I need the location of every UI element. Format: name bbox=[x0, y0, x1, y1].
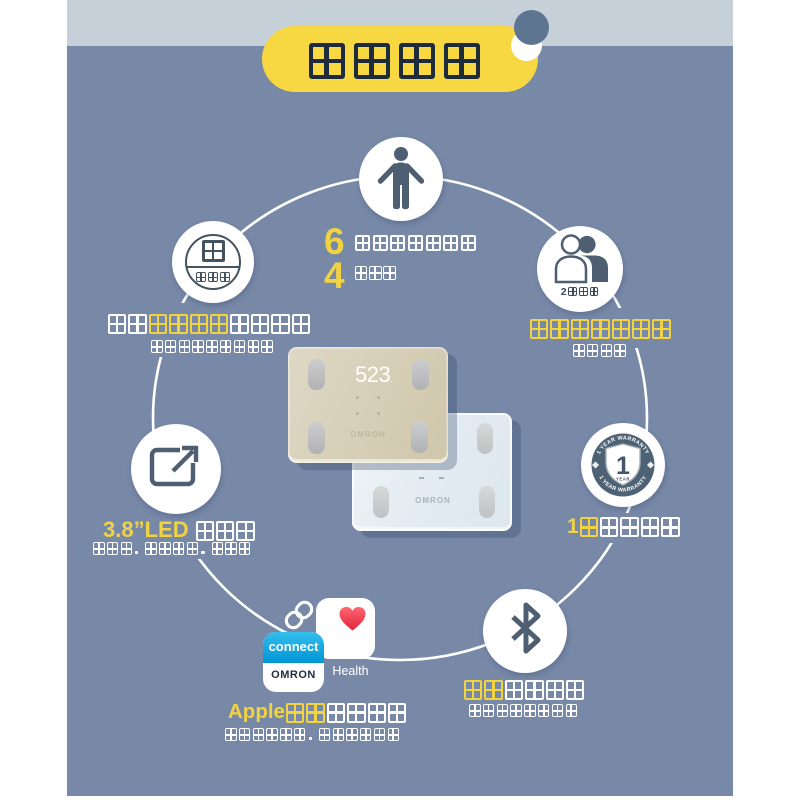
svg-text:YEAR: YEAR bbox=[616, 477, 631, 482]
